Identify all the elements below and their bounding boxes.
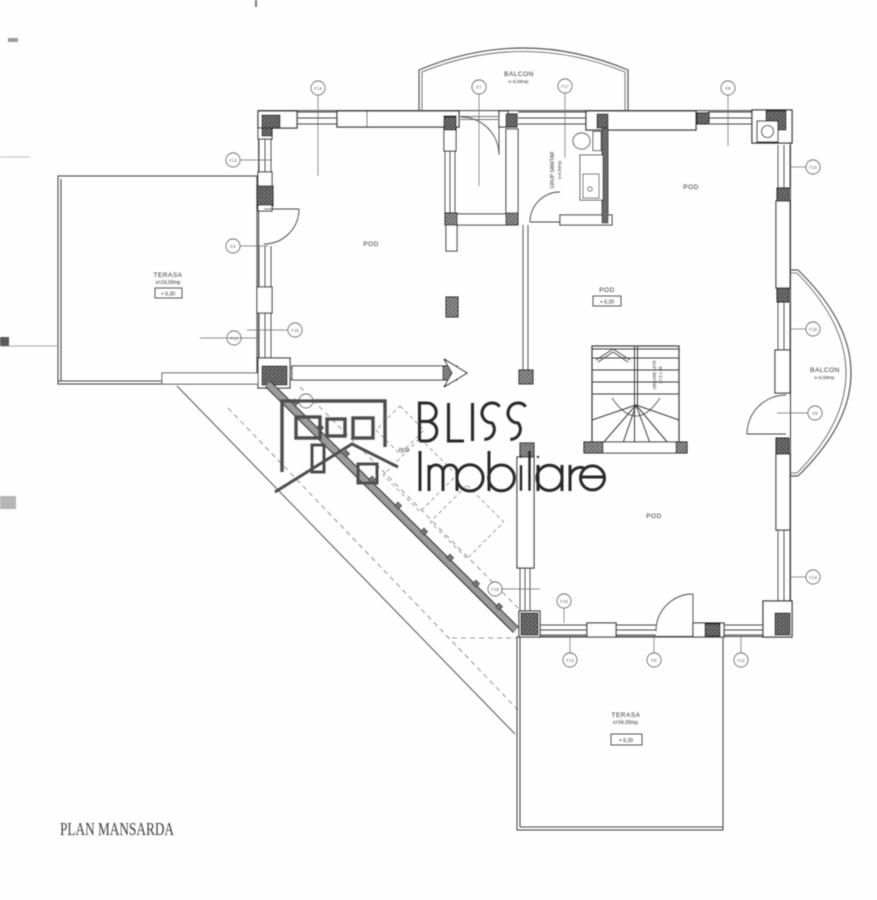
svg-text:GRUP SANITAR: GRUP SANITAR bbox=[550, 151, 556, 188]
svg-text:F14: F14 bbox=[809, 575, 817, 580]
svg-text:F13: F13 bbox=[229, 158, 237, 163]
svg-text:F14: F14 bbox=[314, 86, 322, 91]
svg-text:s=24,09mp: s=24,09mp bbox=[156, 280, 181, 286]
svg-text:+ 6,30: + 6,30 bbox=[600, 300, 614, 306]
svg-text:17,5 x 28: 17,5 x 28 bbox=[658, 366, 663, 384]
svg-text:F17: F17 bbox=[561, 84, 569, 89]
svg-text:BALCON: BALCON bbox=[810, 367, 840, 374]
svg-text:F4: F4 bbox=[230, 244, 236, 249]
svg-text:POD: POD bbox=[683, 184, 699, 191]
svg-text:F18: F18 bbox=[809, 327, 817, 332]
svg-text:F16: F16 bbox=[560, 599, 568, 604]
svg-text:F8: F8 bbox=[812, 411, 818, 416]
svg-text:F18: F18 bbox=[491, 587, 499, 592]
svg-text:F12: F12 bbox=[737, 658, 745, 663]
svg-text:POD: POD bbox=[599, 287, 615, 294]
svg-text:F13: F13 bbox=[566, 658, 574, 663]
svg-text:TERASA: TERASA bbox=[153, 272, 182, 279]
svg-text:F7: F7 bbox=[476, 85, 482, 90]
svg-text:BALCON: BALCON bbox=[504, 71, 534, 78]
svg-text:F10: F10 bbox=[809, 165, 817, 170]
svg-text:PLAN MANSARDA: PLAN MANSARDA bbox=[60, 819, 174, 839]
svg-text:F12: F12 bbox=[230, 336, 238, 341]
svg-text:+ 6,30: + 6,30 bbox=[619, 738, 633, 744]
svg-text:POD: POD bbox=[363, 241, 379, 248]
svg-text:F9: F9 bbox=[725, 86, 731, 91]
svg-text:POD: POD bbox=[646, 513, 662, 520]
svg-text:URCARE 18TR: URCARE 18TR bbox=[652, 360, 657, 389]
svg-text:POD: POD bbox=[399, 448, 410, 454]
svg-text:F15: F15 bbox=[291, 328, 299, 333]
svg-text:F5: F5 bbox=[651, 658, 657, 663]
svg-text:s=34,00mp.: s=34,00mp. bbox=[613, 720, 639, 726]
svg-text:s=6,59mp.: s=6,59mp. bbox=[508, 79, 529, 84]
svg-text:s=6,59mp.: s=6,59mp. bbox=[814, 375, 835, 380]
svg-text:s=4,84mp: s=4,84mp bbox=[557, 160, 562, 179]
svg-text:TERASA: TERASA bbox=[611, 712, 640, 719]
svg-text:+ 6,30: + 6,30 bbox=[161, 292, 175, 298]
